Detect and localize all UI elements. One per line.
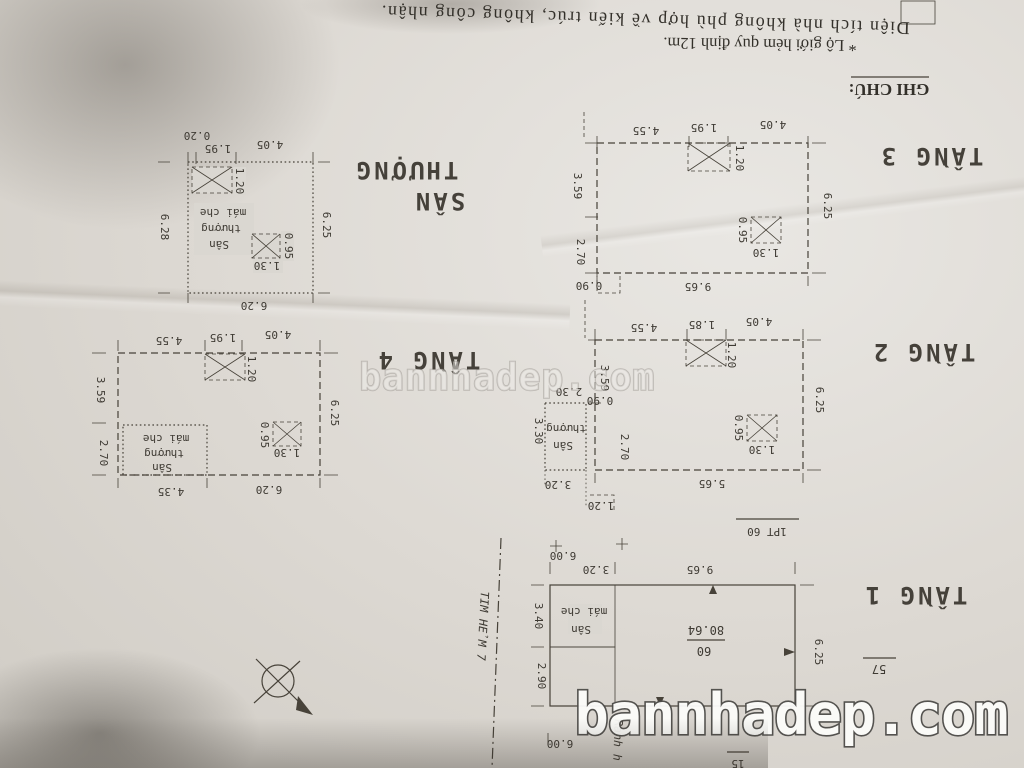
ref-note-1pt60: 1PT 60 [736,519,799,538]
adjacent-lot-57: 57 [863,658,896,676]
plan-title: TẦNG 2 [871,338,976,367]
svg-text:thượng: thượng [201,222,241,235]
plan-tang4: 1.20 0.95 1.30 mái che thượng Sân 4.55 1… [92,328,480,498]
note-rule2: Diện tích nhà không phù hợp về kiến trúc… [380,2,910,39]
dim-right: 6.25 [320,212,333,239]
svg-text:Sân: Sân [152,461,172,474]
svg-text:2.70: 2.70 [618,434,631,461]
svg-text:1.20: 1.20 [245,356,258,383]
svg-text:9.65: 9.65 [687,563,714,576]
terrace-hatch-box: thượng Sân [545,403,614,511]
svg-text:5.65: 5.65 [699,477,726,490]
note-rule1: * Lộ giới hẻm quy định 12m. [663,34,857,56]
alley-centerline [492,538,501,768]
lot-area: 80.64 [688,623,724,637]
ref-note-15: 15 [727,752,749,768]
svg-text:mái che: mái che [200,206,246,219]
svg-text:6.00: 6.00 [547,737,574,750]
stairwell-box: 1.20 [205,354,258,382]
svg-text:2.70: 2.70 [97,440,110,467]
svg-text:1.20: 1.20 [588,499,615,512]
floorplan-drawing: 1.20 mái che thượng Sân 0.95 1.30 0.20 [0,0,1024,768]
svg-text:3.40: 3.40 [532,603,545,630]
svg-text:6.25: 6.25 [328,400,341,427]
svg-text:Sân: Sân [571,623,591,636]
shaft-box: 0.95 1.30 [251,231,295,273]
plan-san-thuong: 1.20 mái che thượng Sân 0.95 1.30 0.20 [158,129,465,312]
plan-title-line2: THƯỢNG [354,156,459,184]
dim-stair: 1.20 [233,168,246,195]
svg-text:mái che: mái che [143,432,189,445]
dim-top-020: 0.20 [184,129,211,142]
shaft-box: 0.95 1.30 [732,415,777,456]
covered-yard-box: mái che Sân [550,585,615,647]
photo-of-floorplan-document: 1.20 mái che thượng Sân 0.95 1.30 0.20 [0,0,1024,768]
svg-text:1.30: 1.30 [753,246,780,259]
svg-text:1.20: 1.20 [725,342,738,369]
stairwell-box: 1.20 [686,340,738,368]
svg-text:Sân: Sân [553,439,573,452]
svg-text:Sân: Sân [209,238,229,251]
plan-title: TẦNG 3 [879,142,984,171]
terrace-box: mái che thượng Sân [123,425,207,475]
svg-text:1.95: 1.95 [691,121,718,134]
svg-text:0.95: 0.95 [736,217,749,244]
svg-text:1.20: 1.20 [733,145,746,172]
svg-text:1.30: 1.30 [274,446,301,459]
svg-text:57: 57 [872,662,886,676]
plan-title-line1: SÂN [413,187,465,216]
plan-tang3: 1.20 0.95 1.30 4.55 1.95 4.05 3.59 2.70 … [571,112,983,293]
stairwell-box: 1.20 [688,143,746,171]
svg-text:4.55: 4.55 [156,334,183,347]
dim-top-405: 4.05 [257,138,284,151]
plan-title: TẦNG 1 [863,581,968,610]
svg-text:mái che: mái che [561,605,607,618]
notes-heading: GHI CHÚ: [849,80,930,99]
plan-tang2: 1.20 0.95 1.30 thượng Sân 4.55 1.85 4.05 [532,300,975,512]
svg-text:1.30: 1.30 [749,443,776,456]
lot-fraction: 80.64 60 [687,623,725,658]
svg-text:9.65: 9.65 [685,280,712,293]
dimension-ticks [585,136,826,286]
svg-text:4.05: 4.05 [265,328,292,341]
dim-left: 6.28 [158,214,171,241]
svg-text:4.55: 4.55 [631,321,658,334]
svg-text:6.25: 6.25 [821,193,834,220]
terrace-room-text: mái che thượng Sân [194,203,254,255]
svg-text:3.20: 3.20 [545,478,572,491]
dimension-ticks [92,340,338,488]
svg-text:1.95: 1.95 [210,331,237,344]
svg-text:4.05: 4.05 [760,118,787,131]
shaft-box: 0.95 1.30 [736,217,781,259]
watermark-layer: bannhadep.com bannhadep.com [359,356,1008,748]
svg-text:0.95: 0.95 [258,422,271,449]
lot-number: 60 [697,644,711,658]
svg-text:2.70: 2.70 [574,239,587,266]
stairwell-box: 1.20 [192,167,246,195]
svg-text:thượng: thượng [144,447,184,460]
svg-text:3.59: 3.59 [571,173,584,200]
svg-text:1PT 60: 1PT 60 [747,525,787,538]
svg-text:6.25: 6.25 [813,387,826,414]
svg-text:3.20: 3.20 [583,563,610,576]
watermark-big: bannhadep.com [574,682,1007,748]
svg-text:2.90: 2.90 [535,663,548,690]
shaft-box: 0.95 1.30 [258,422,301,459]
svg-text:thượng: thượng [546,422,586,435]
notes-block: GHI CHÚ: * Lộ giới hẻm quy định 12m. Diệ… [380,1,935,99]
dim-shaft-l: 1.30 [254,259,281,272]
svg-text:1.85: 1.85 [689,318,716,331]
svg-text:15: 15 [731,757,744,768]
svg-text:6.20: 6.20 [256,483,283,496]
svg-text:4.55: 4.55 [633,124,660,137]
north-arrow-icon [254,659,313,715]
svg-text:4.35: 4.35 [158,485,185,498]
svg-text:3.59: 3.59 [94,377,107,404]
alley-axis-label: TIM HẺM 7 [474,591,492,661]
watermark-faint: bannhadep.com [359,356,655,399]
dim-top-195: 1.95 [205,142,232,155]
dim-bottom: 6.20 [241,299,268,312]
svg-text:4.05: 4.05 [746,315,773,328]
svg-text:3.30: 3.30 [532,418,545,445]
svg-text:6.25: 6.25 [812,639,825,666]
svg-text:6.00: 6.00 [550,549,577,562]
dim-shaft-w: 0.95 [282,233,295,260]
svg-text:0.90: 0.90 [576,279,603,292]
svg-text:0.95: 0.95 [732,415,745,442]
